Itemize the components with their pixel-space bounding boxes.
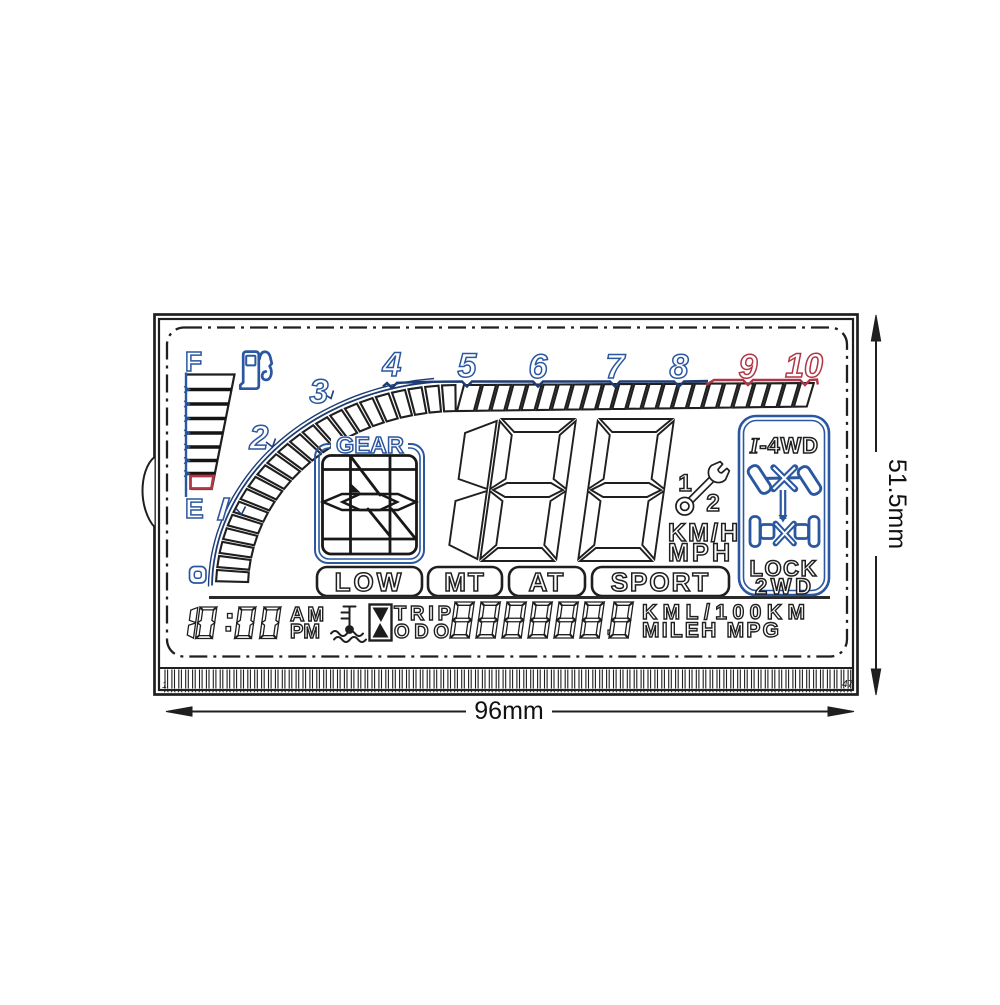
svg-text:AT: AT bbox=[529, 567, 566, 597]
svg-text:SPORT: SPORT bbox=[611, 567, 711, 597]
svg-text:1: 1 bbox=[162, 680, 167, 690]
svg-text:6: 6 bbox=[529, 348, 549, 386]
svg-text:MILEH MPG: MILEH MPG bbox=[642, 619, 779, 642]
svg-text:F: F bbox=[185, 346, 202, 377]
svg-text:96mm: 96mm bbox=[474, 697, 543, 725]
svg-text:3: 3 bbox=[310, 373, 329, 411]
svg-text:MPH: MPH bbox=[668, 539, 730, 567]
svg-text:9: 9 bbox=[739, 348, 758, 386]
svg-text:1: 1 bbox=[678, 470, 691, 497]
svg-text:MT: MT bbox=[444, 567, 486, 597]
svg-text:I-4WD: I-4WD bbox=[749, 433, 818, 458]
svg-text:51.5mm: 51.5mm bbox=[883, 459, 911, 549]
svg-text:47: 47 bbox=[842, 679, 854, 690]
svg-text:PM: PM bbox=[290, 621, 320, 643]
svg-text:ODO: ODO bbox=[394, 621, 449, 643]
svg-text:2WD: 2WD bbox=[755, 574, 811, 599]
svg-text:E: E bbox=[185, 493, 204, 524]
svg-text:8: 8 bbox=[670, 348, 689, 386]
svg-text:2: 2 bbox=[706, 490, 719, 517]
svg-text:4: 4 bbox=[382, 346, 402, 384]
svg-text:7: 7 bbox=[606, 348, 627, 386]
svg-text:LOW: LOW bbox=[335, 567, 405, 597]
svg-text:5: 5 bbox=[458, 347, 478, 385]
svg-text:10: 10 bbox=[785, 347, 823, 385]
svg-text:2: 2 bbox=[249, 419, 269, 457]
